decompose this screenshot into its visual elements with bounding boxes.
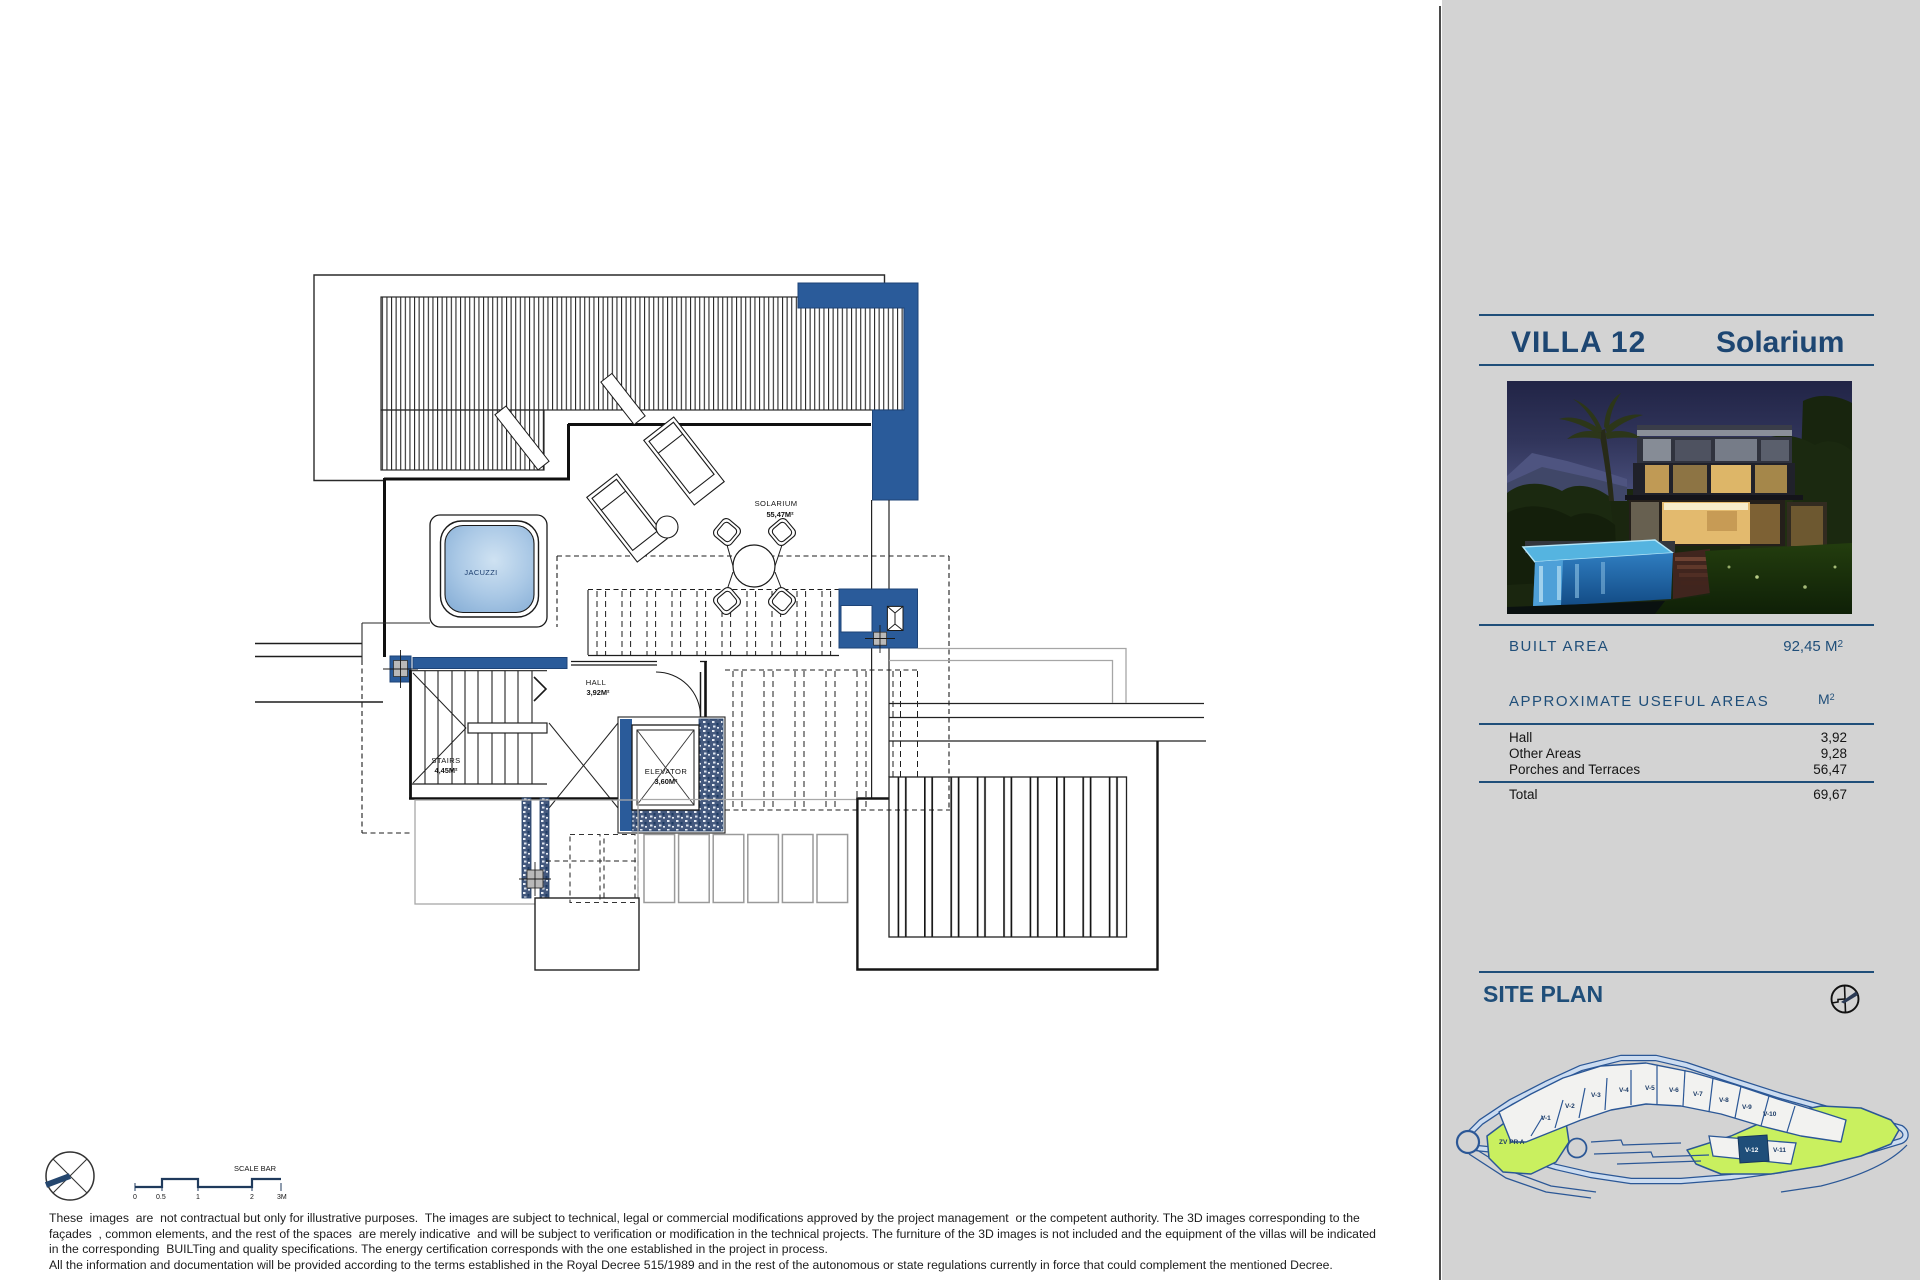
svg-text:SCALE BAR: SCALE BAR: [234, 1164, 277, 1173]
svg-text:V-6: V-6: [1669, 1087, 1679, 1094]
svg-text:STAIRS: STAIRS: [431, 756, 460, 765]
svg-text:V-12: V-12: [1745, 1147, 1759, 1154]
svg-text:V-5: V-5: [1645, 1085, 1655, 1092]
svg-text:SOLARIUM: SOLARIUM: [755, 499, 798, 508]
svg-text:V-1: V-1: [1541, 1115, 1551, 1122]
svg-text:HALL: HALL: [586, 678, 607, 687]
svg-text:JACUZZI: JACUZZI: [464, 568, 497, 577]
svg-text:3,92M²: 3,92M²: [586, 688, 610, 697]
svg-text:1: 1: [196, 1194, 200, 1201]
svg-text:ZV PR A: ZV PR A: [1499, 1139, 1525, 1146]
svg-text:2: 2: [250, 1194, 254, 1201]
svg-text:V-10: V-10: [1763, 1111, 1777, 1118]
svg-text:V-4: V-4: [1619, 1087, 1629, 1094]
svg-text:ELEVATOR: ELEVATOR: [645, 767, 688, 776]
svg-text:55,47M²: 55,47M²: [766, 510, 794, 519]
svg-text:V-9: V-9: [1742, 1104, 1752, 1111]
svg-text:0: 0: [133, 1194, 137, 1201]
svg-text:V-3: V-3: [1591, 1092, 1601, 1099]
svg-text:V-11: V-11: [1773, 1147, 1786, 1154]
svg-text:V-7: V-7: [1693, 1091, 1703, 1098]
svg-text:V-2: V-2: [1565, 1103, 1575, 1110]
svg-text:3,60M²: 3,60M²: [654, 777, 678, 786]
svg-text:4,45M²: 4,45M²: [434, 766, 458, 775]
svg-text:V-8: V-8: [1719, 1097, 1729, 1104]
svg-text:3M: 3M: [277, 1194, 287, 1201]
svg-text:0.5: 0.5: [156, 1194, 166, 1201]
